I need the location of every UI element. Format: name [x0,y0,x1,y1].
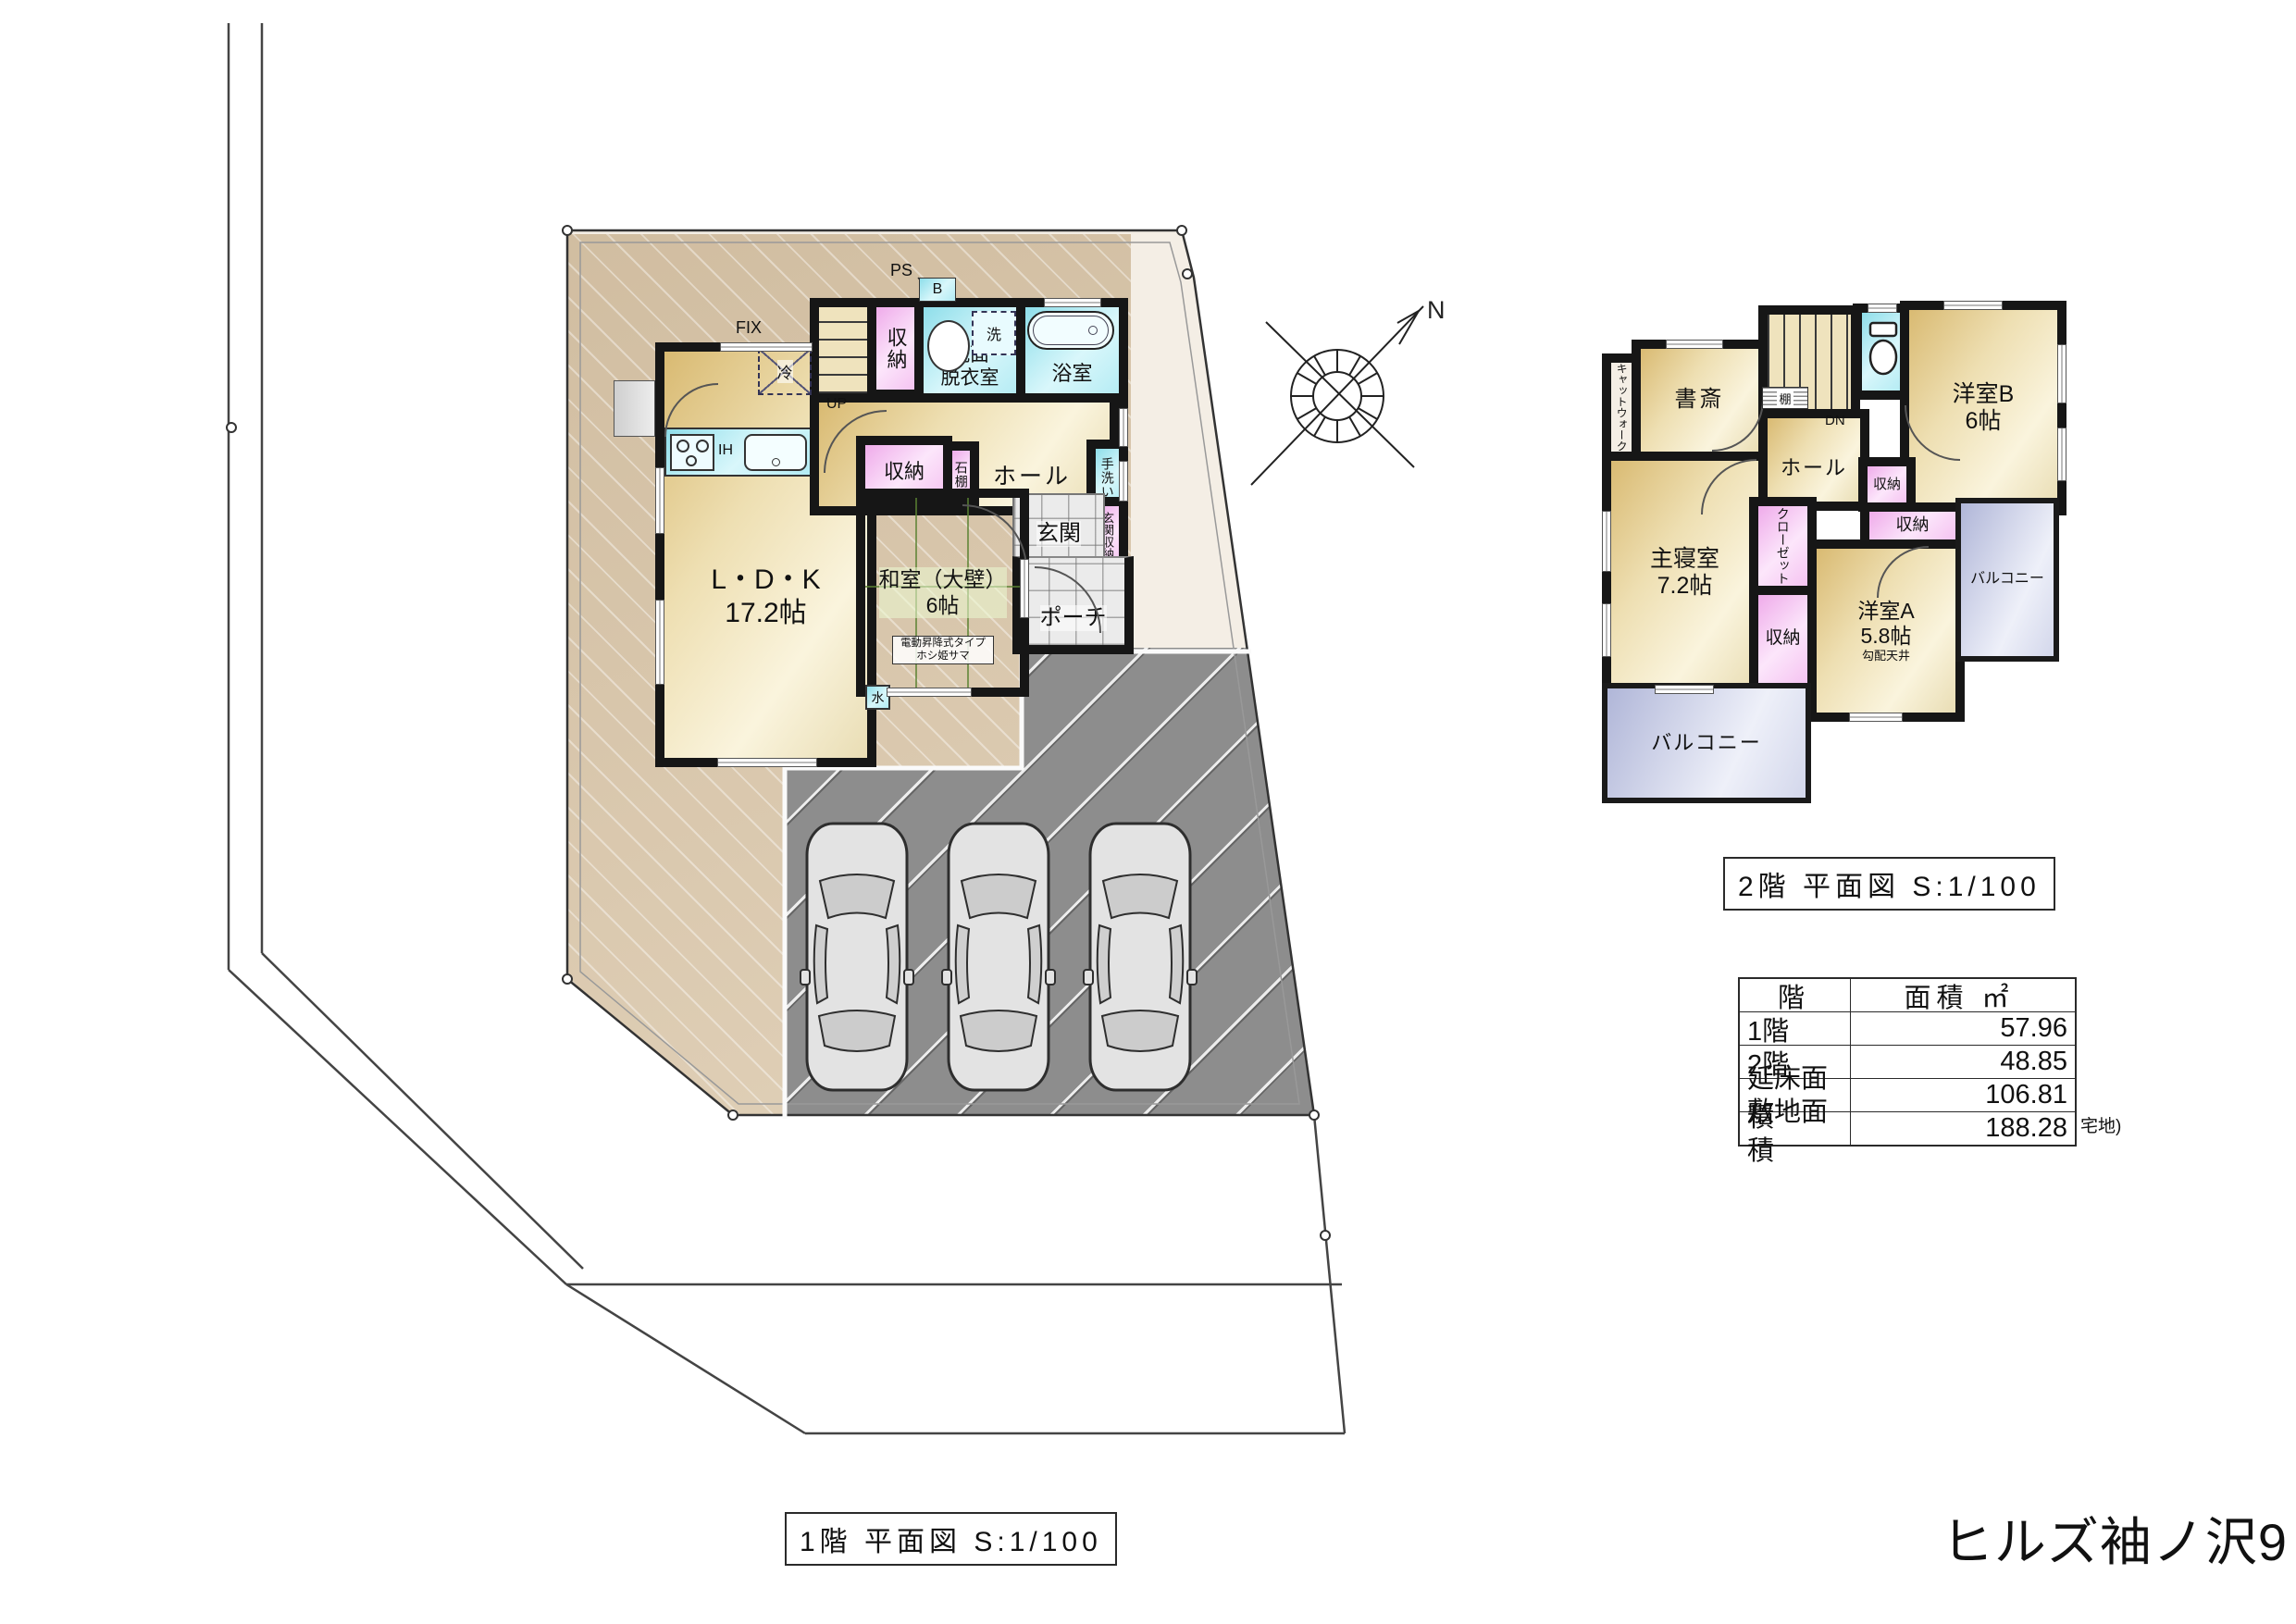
floorplan-sheet: { "title": "ヒルズ袖ノ沢9", "captions": { "flo… [0,0,2296,1624]
up-label: UP [826,396,847,414]
window [2057,344,2066,403]
storage-label: 収納 [1765,628,1800,649]
area-table: 階 面積 ㎡ 1階 57.96 2階 48.85 延床面積 106.81 敷地面… [1738,977,2077,1147]
balcony-label: バルコニー [1651,731,1762,755]
western-a-note: 勾配天井 [1857,649,1914,663]
balcony-label: バルコニー [1970,571,2044,589]
row-value: 57.96 [1851,1013,2075,1044]
entrance-label: 玄関 [1036,521,1081,547]
window [1666,340,1723,349]
washitsu-name: 和室（大壁） [879,567,1007,592]
balcony-south: バルコニー [1602,683,1811,803]
dn-label: DN [1825,413,1845,429]
area-table-col-area: 面積 ㎡ [1851,976,2075,1015]
ih-label: IH [718,442,733,460]
catwalk-label: キャットウォーク [1615,363,1628,452]
washitsu-label: 和室（大壁） 6帖 [879,567,1007,617]
balcony-east: バルコニー [1955,498,2059,662]
shelf-label: 棚 [1777,390,1793,407]
washer-label: 洗 [987,322,1001,344]
floor2-caption: 2階 平面図 S:1/100 [1723,857,2055,911]
site-note: 宅地) [2080,1112,2121,1137]
table-row: 1階 57.96 [1740,1011,2075,1045]
fix-window [720,342,813,352]
western-b-size: 6帖 [1953,408,2015,436]
hall-2f-label: ホール [1781,456,1847,480]
back-door-step [614,380,655,437]
shelf-box: 棚 [1762,387,1808,409]
window [1044,298,1101,307]
hall-label: ホール [993,464,1071,491]
storage-label: 収納 [884,460,925,484]
window [887,688,972,697]
western-a-name: 洋室A [1857,599,1914,624]
laundry-lift-line1: 電動昇降式タイプ [900,638,986,650]
window [1849,713,1903,722]
kitchen-sink-icon [744,434,807,471]
closet-label: クローゼット [1775,507,1791,585]
master-size: 7.2帖 [1650,573,1719,601]
ps-label: PS [890,261,912,280]
water-meter-label: 水 [872,688,885,707]
fridge-label: 冷 [777,360,793,383]
area-table-header: 階 面積 ㎡ [1740,979,2075,1011]
window [717,758,817,767]
ih-stove-icon [670,434,714,471]
storage-label: 収納 [1873,477,1901,493]
toilet-2f-icon [1863,320,1904,383]
north-label: N [1427,296,1446,324]
laundry-lift-box: 電動昇降式タイプ ホシ姫サマ [892,636,994,664]
western-a-label: 洋室A 5.8帖 勾配天井 [1857,599,1914,663]
western-b-label: 洋室B 6帖 [1953,381,2015,436]
ldk-name: L・D・K [711,564,820,596]
window [655,600,664,685]
storage-label: 収納 [884,327,908,371]
storage-label: 収納 [1896,515,1930,535]
laundry-lift-line2: ホシ姫サマ [916,651,970,663]
row-value: 106.81 [1851,1080,2075,1110]
stone-shelf-label: 石棚 [953,461,969,489]
master-name: 主寝室 [1650,546,1719,574]
table-row: 敷地面積 188.28 [1740,1111,2075,1145]
washitsu-size: 6帖 [879,593,1007,618]
washer-box: 洗 [972,311,1016,355]
window [1655,685,1714,694]
window [1119,461,1128,502]
master-bedroom-label: 主寝室 7.2帖 [1650,546,1719,601]
window [1868,304,1897,313]
window [655,467,664,534]
room-hall-2f: ホール [1758,409,1869,511]
window [1602,511,1611,572]
window [1119,408,1128,447]
project-title: ヒルズ袖ノ沢9 [1851,1501,2288,1576]
window [1602,603,1611,657]
western-a-size: 5.8帖 [1857,624,1914,649]
vanity-sink-icon [927,320,970,372]
fridge-box: 冷 [758,348,812,395]
area-table-col-floor: 階 [1740,979,1851,1011]
boiler-box: B [919,278,956,302]
window [1943,301,2003,310]
row-value: 48.85 [1851,1047,2075,1077]
window [2057,428,2066,481]
window [1020,559,1029,618]
western-b-name: 洋室B [1953,381,2015,409]
fix-label: FIX [736,318,762,338]
compass-icon [1251,306,1423,485]
bath-label: 浴室 [1051,362,1092,386]
floor1-caption: 1階 平面図 S:1/100 [785,1512,1117,1566]
row-label: 1階 [1740,1012,1851,1045]
ldk-size: 17.2帖 [711,597,820,629]
handwash-label: 手洗い [1099,457,1115,499]
row-label: 敷地面積 [1740,1112,1851,1145]
row-value: 188.28 [1851,1113,2075,1144]
ldk-label: L・D・K 17.2帖 [711,564,820,629]
bathtub-icon [1027,311,1114,350]
boiler-label: B [933,281,943,298]
